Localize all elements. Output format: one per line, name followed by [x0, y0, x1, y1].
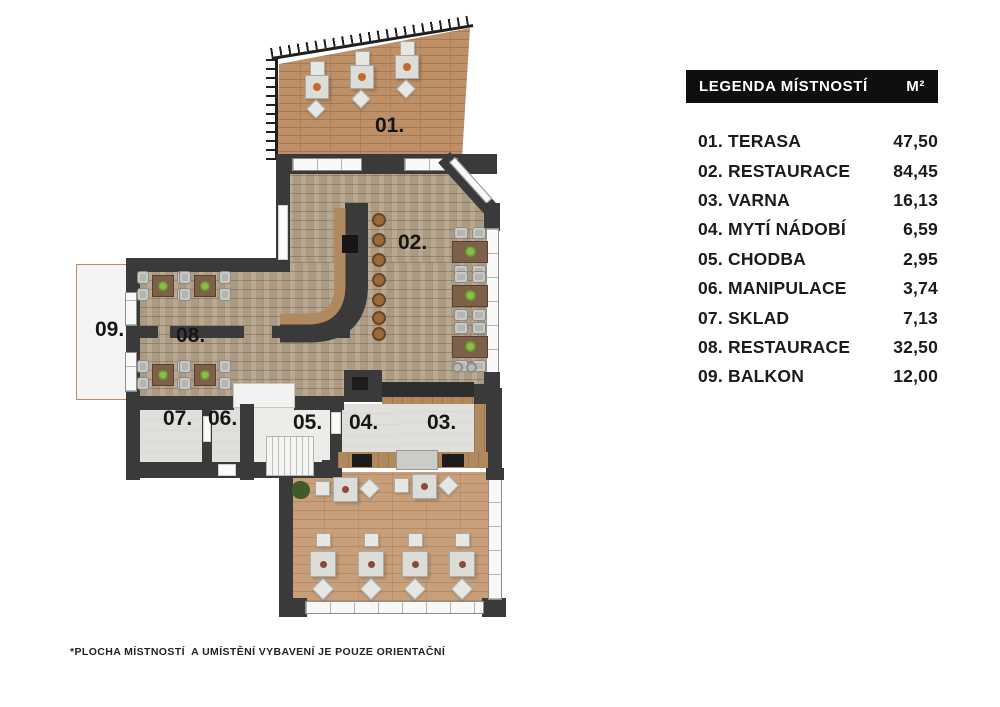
- kitchen-unit: [396, 450, 438, 470]
- legend-room-name: 06. MANIPULACE: [698, 278, 847, 299]
- chair: [454, 322, 468, 334]
- kitchen-counter-right: [474, 404, 486, 452]
- room-label-terasa: 01.: [375, 114, 404, 138]
- disclaimer-note: *PLOCHA MÍSTNOSTÍ A UMÍSTĚNÍ VYBAVENÍ JE…: [70, 646, 445, 658]
- wall-dining-corner: [279, 598, 307, 617]
- window: [292, 158, 362, 171]
- chair: [219, 360, 231, 373]
- table-item: [412, 561, 419, 568]
- door: [218, 464, 236, 476]
- kitchen-counter-top: [382, 382, 474, 397]
- wall-06-05: [240, 404, 254, 480]
- door: [331, 412, 341, 434]
- legend-room-name: 04. MYTÍ NÁDOBÍ: [698, 219, 846, 240]
- legend-room-name: 09. BALKON: [698, 366, 804, 387]
- legend-row: 06. MANIPULACE3,74: [698, 274, 938, 303]
- chair: [454, 309, 468, 321]
- chair: [315, 481, 330, 496]
- legend-room-name: 02. RESTAURACE: [698, 161, 850, 182]
- chair: [310, 61, 325, 76]
- table-item: [368, 561, 375, 568]
- door: [278, 205, 288, 260]
- appliance: [352, 377, 368, 390]
- chair: [364, 533, 379, 547]
- chair: [219, 377, 231, 390]
- legend-row: 09. BALKON12,00: [698, 362, 938, 391]
- bar-stool: [372, 311, 386, 325]
- bar-stool: [372, 253, 386, 267]
- table-item: [313, 83, 321, 91]
- legend-row: 02. RESTAURACE84,45: [698, 156, 938, 185]
- wall-mid: [126, 326, 158, 338]
- room-label-chodba: 05.: [293, 411, 322, 435]
- wall-dining-left: [279, 468, 293, 617]
- chair: [179, 271, 191, 284]
- chair: [179, 377, 191, 390]
- plant-icon: [292, 481, 310, 499]
- chair: [454, 227, 468, 239]
- bar-stool: [372, 233, 386, 247]
- legend-row: 03. VARNA16,13: [698, 186, 938, 215]
- staircase: [266, 436, 314, 476]
- appliance: [442, 454, 464, 467]
- chair: [472, 271, 486, 283]
- chair: [137, 271, 149, 284]
- legend-room-name: 03. VARNA: [698, 190, 790, 211]
- plant-icon: [465, 290, 476, 301]
- legend-panel: LEGENDA MÍSTNOSTÍ M² 01. TERASA47,50 02.…: [686, 70, 938, 392]
- legend-unit-header: M²: [906, 78, 925, 95]
- legend-header: LEGENDA MÍSTNOSTÍ M²: [686, 70, 938, 103]
- legend-room-area: 2,95: [903, 249, 938, 270]
- plant-icon: [465, 341, 476, 352]
- window: [488, 476, 502, 600]
- chair: [400, 41, 415, 56]
- window: [305, 601, 484, 614]
- table-item: [459, 561, 466, 568]
- legend-room-area: 7,13: [903, 308, 938, 329]
- legend-row: 04. MYTÍ NÁDOBÍ6,59: [698, 215, 938, 244]
- table-item: [421, 483, 428, 490]
- chair: [455, 533, 470, 547]
- room-label-balkon: 09.: [95, 318, 124, 342]
- appliance: [352, 454, 372, 467]
- legend-room-area: 16,13: [893, 190, 938, 211]
- plant-icon: [200, 281, 210, 291]
- chair: [219, 271, 231, 284]
- bar-stool: [372, 273, 386, 287]
- chair: [179, 360, 191, 373]
- legend-rows: 01. TERASA47,50 02. RESTAURACE84,45 03. …: [686, 127, 938, 392]
- wall-right-top: [484, 203, 500, 231]
- plant-icon: [200, 370, 210, 380]
- wall-dining-corner: [482, 598, 506, 617]
- legend-room-area: 6,59: [903, 219, 938, 240]
- legend-title: LEGENDA MÍSTNOSTÍ: [699, 78, 868, 95]
- room-label-varna: 03.: [427, 411, 456, 435]
- room-label-manipulace: 06.: [208, 407, 237, 431]
- room-label-myti-nadobi: 04.: [349, 411, 378, 435]
- legend-room-name: 08. RESTAURACE: [698, 337, 850, 358]
- legend-room-name: 05. CHODBA: [698, 249, 806, 270]
- legend-room-area: 12,00: [893, 366, 938, 387]
- table-item: [358, 73, 366, 81]
- window: [125, 292, 137, 326]
- bar-stool: [372, 293, 386, 307]
- bar-stool: [372, 213, 386, 227]
- chair: [394, 478, 409, 493]
- legend-row: 05. CHODBA2,95: [698, 245, 938, 274]
- chair: [355, 51, 370, 66]
- legend-room-name: 07. SKLAD: [698, 308, 789, 329]
- window: [125, 352, 137, 392]
- kitchen-counter-top-wood: [382, 397, 474, 404]
- wall-kitchen-right: [486, 388, 502, 480]
- room-label-restaurace-2: 08.: [176, 324, 205, 348]
- chair: [137, 377, 149, 390]
- legend-room-area: 32,50: [893, 337, 938, 358]
- legend-room-area: 84,45: [893, 161, 938, 182]
- legend-room-area: 47,50: [893, 131, 938, 152]
- legend-row: 07. SKLAD7,13: [698, 303, 938, 332]
- legend-row: 01. TERASA47,50: [698, 127, 938, 156]
- chair: [219, 288, 231, 301]
- legend-room-area: 3,74: [903, 278, 938, 299]
- wall-room08-top: [126, 258, 290, 272]
- chair: [137, 360, 149, 373]
- legend-row: 08. RESTAURACE32,50: [698, 333, 938, 362]
- chair: [316, 533, 331, 547]
- plant-icon: [465, 246, 476, 257]
- plant-icon: [158, 370, 168, 380]
- chair: [472, 227, 486, 239]
- chair: [472, 309, 486, 321]
- terrace-railing-left: [266, 58, 278, 160]
- chair: [472, 322, 486, 334]
- room-label-sklad: 07.: [163, 407, 192, 431]
- chair: [137, 288, 149, 301]
- chair: [179, 288, 191, 301]
- plant-pot: [452, 362, 463, 373]
- room-label-restaurace: 02.: [398, 231, 427, 255]
- plant-icon: [158, 281, 168, 291]
- plant-pot: [466, 362, 477, 373]
- chair: [408, 533, 423, 547]
- chair: [454, 271, 468, 283]
- table-item: [320, 561, 327, 568]
- legend-room-name: 01. TERASA: [698, 131, 801, 152]
- bar-stool: [372, 327, 386, 341]
- wall-dining-stub: [486, 468, 504, 480]
- table-item: [403, 63, 411, 71]
- table-item: [342, 486, 349, 493]
